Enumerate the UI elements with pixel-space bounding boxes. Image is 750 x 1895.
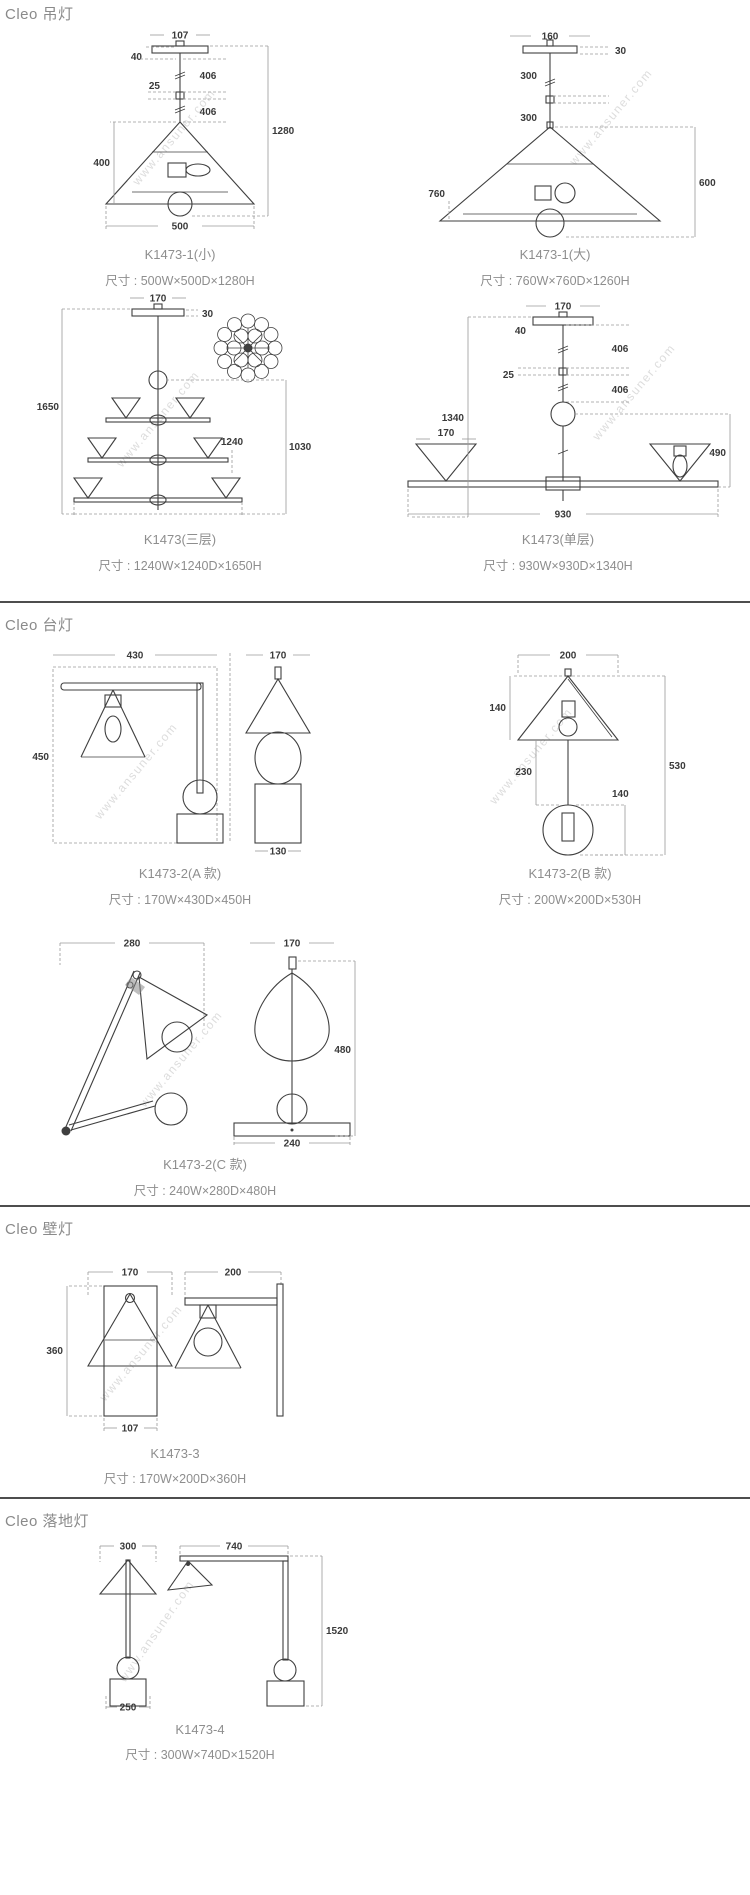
pendant-small-drawing: www.ansuner.com 107 40 406 25 406 bbox=[30, 26, 330, 238]
figure-caption: K1473-2(A 款) bbox=[25, 863, 335, 882]
dim-label: 450 bbox=[32, 752, 49, 763]
dim-label: 107 bbox=[172, 31, 189, 42]
dim-label: 360 bbox=[46, 1346, 63, 1357]
chandelier-plan-view bbox=[214, 314, 282, 382]
figure-caption: K1473(单层) bbox=[368, 529, 748, 548]
figure-caption: K1473-2(C 款) bbox=[35, 1154, 375, 1173]
table-lamp-b-drawing: www.ansuner.com 200 140 230 140 530 bbox=[440, 645, 700, 857]
figure-pendant-large: www.ansuner.com 160 30 300 300 760 600 bbox=[385, 26, 725, 289]
dim-label: 930 bbox=[555, 510, 572, 521]
dim-label: 230 bbox=[515, 767, 532, 778]
dim-label: 400 bbox=[93, 158, 110, 169]
figure-caption: K1473-1(小) bbox=[30, 244, 330, 263]
figure-size: 尺寸 : 760W×760D×1260H bbox=[385, 270, 725, 289]
dim-label: 170 bbox=[438, 428, 455, 439]
section-title-pendant: Cleo 吊灯 bbox=[5, 3, 74, 24]
spec-sheet-page: Cleo 吊灯 www.ansuner.com 107 40 406 25 40… bbox=[0, 0, 750, 1895]
figure-size: 尺寸 : 200W×200D×530H bbox=[440, 889, 700, 908]
pendant-three-tier-drawing: www.ansuner.com 170 30 bbox=[30, 288, 330, 523]
dim-label: 240 bbox=[284, 1139, 301, 1149]
figure-caption: K1473-2(B 款) bbox=[440, 863, 700, 882]
figure-pendant-single-tier: www.ansuner.com 170 40 406 25 406 170 bbox=[368, 296, 748, 574]
watermark-text: www.ansuner.com bbox=[566, 66, 655, 169]
dim-label: 1030 bbox=[289, 442, 312, 453]
wall-lamp-drawing: www.ansuner.com 170 360 107 200 bbox=[35, 1262, 315, 1440]
dim-label: 170 bbox=[122, 1268, 139, 1279]
dim-label: 406 bbox=[612, 344, 629, 355]
watermark-text: www.ansuner.com bbox=[589, 341, 678, 444]
table-lamp-a-drawing: www.ansuner.com 430 170 450 130 bbox=[25, 645, 335, 857]
dim-label: 280 bbox=[124, 939, 141, 950]
dim-label: 170 bbox=[150, 294, 167, 305]
dim-label: 1240 bbox=[221, 437, 244, 448]
dim-label: 300 bbox=[120, 1542, 137, 1553]
table-lamp-c-drawing: www.ansuner.com 280 170 480 bbox=[35, 933, 375, 1148]
dim-label: 200 bbox=[560, 651, 577, 662]
figure-size: 尺寸 : 500W×500D×1280H bbox=[30, 270, 330, 289]
figure-caption: K1473(三层) bbox=[30, 529, 330, 548]
dim-label: 30 bbox=[615, 46, 627, 57]
dim-label: 1520 bbox=[326, 1626, 349, 1637]
dim-label: 140 bbox=[489, 703, 506, 714]
dim-label: 170 bbox=[270, 651, 287, 662]
dim-label: 740 bbox=[226, 1542, 243, 1553]
dim-label: 530 bbox=[669, 761, 686, 772]
dim-label: 300 bbox=[520, 113, 537, 124]
section-divider bbox=[0, 1497, 750, 1499]
dim-label: 406 bbox=[612, 385, 629, 396]
figure-caption: K1473-3 bbox=[35, 1446, 315, 1461]
section-title-table: Cleo 台灯 bbox=[5, 614, 74, 635]
figure-size: 尺寸 : 240W×280D×480H bbox=[35, 1180, 375, 1199]
pendant-single-tier-drawing: www.ansuner.com 170 40 406 25 406 170 bbox=[368, 296, 748, 523]
dim-label: 406 bbox=[200, 71, 217, 82]
dim-label: 250 bbox=[120, 1703, 137, 1714]
dim-label: 30 bbox=[202, 309, 214, 320]
dim-label: 300 bbox=[520, 71, 537, 82]
figure-wall-lamp: www.ansuner.com 170 360 107 200 K1 bbox=[35, 1262, 315, 1487]
dim-label: 25 bbox=[503, 370, 515, 381]
figure-size: 尺寸 : 930W×930D×1340H bbox=[368, 555, 748, 574]
dim-label: 170 bbox=[284, 939, 301, 950]
figure-size: 尺寸 : 300W×740D×1520H bbox=[40, 1744, 360, 1763]
dim-label: 107 bbox=[122, 1424, 139, 1435]
dim-label: 25 bbox=[149, 81, 161, 92]
watermark-text: www.ansuner.com bbox=[136, 1008, 225, 1111]
figure-size: 尺寸 : 170W×430D×450H bbox=[25, 889, 335, 908]
dim-label: 160 bbox=[542, 32, 559, 43]
section-divider bbox=[0, 1205, 750, 1207]
dim-label: 1280 bbox=[272, 126, 295, 137]
figure-caption: K1473-1(大) bbox=[385, 244, 725, 263]
dim-label: 430 bbox=[127, 651, 144, 662]
pendant-large-drawing: www.ansuner.com 160 30 300 300 760 600 bbox=[385, 26, 725, 238]
figure-size: 尺寸 : 1240W×1240D×1650H bbox=[30, 555, 330, 574]
dim-label: 500 bbox=[172, 222, 189, 233]
section-divider bbox=[0, 601, 750, 603]
dim-label: 480 bbox=[334, 1045, 351, 1056]
figure-table-lamp-b: www.ansuner.com 200 140 230 140 530 bbox=[440, 645, 700, 908]
dim-label: 490 bbox=[709, 448, 726, 459]
dim-label: 760 bbox=[428, 189, 445, 200]
figure-pendant-three-tier: www.ansuner.com 170 30 bbox=[30, 288, 330, 574]
figure-table-lamp-a: www.ansuner.com 430 170 450 130 K1473-2(… bbox=[25, 645, 335, 908]
section-title-wall: Cleo 壁灯 bbox=[5, 1218, 74, 1239]
dim-label: 1340 bbox=[442, 413, 465, 424]
dim-label: 200 bbox=[225, 1268, 242, 1279]
figure-table-lamp-c: www.ansuner.com 280 170 480 bbox=[35, 933, 375, 1199]
dim-label: 40 bbox=[515, 326, 527, 337]
dim-label: 40 bbox=[131, 52, 143, 63]
dim-label: 406 bbox=[200, 107, 217, 118]
watermark-text: www.ansuner.com bbox=[96, 1302, 185, 1405]
figure-size: 尺寸 : 170W×200D×360H bbox=[35, 1468, 315, 1487]
section-title-floor: Cleo 落地灯 bbox=[5, 1510, 89, 1531]
dim-label: 140 bbox=[612, 789, 629, 800]
figure-floor-lamp: www.ansuner.com 300 250 740 1520 K bbox=[40, 1538, 360, 1763]
figure-pendant-small: www.ansuner.com 107 40 406 25 406 bbox=[30, 26, 330, 289]
floor-lamp-drawing: www.ansuner.com 300 250 740 1520 bbox=[40, 1538, 360, 1716]
watermark-text: www.ansuner.com bbox=[91, 720, 180, 823]
dim-label: 130 bbox=[270, 847, 287, 858]
watermark-text: www.ansuner.com bbox=[129, 86, 218, 189]
dim-label: 1650 bbox=[37, 402, 60, 413]
dim-label: 600 bbox=[699, 178, 716, 189]
figure-caption: K1473-4 bbox=[40, 1722, 360, 1737]
dim-label: 170 bbox=[555, 302, 572, 313]
